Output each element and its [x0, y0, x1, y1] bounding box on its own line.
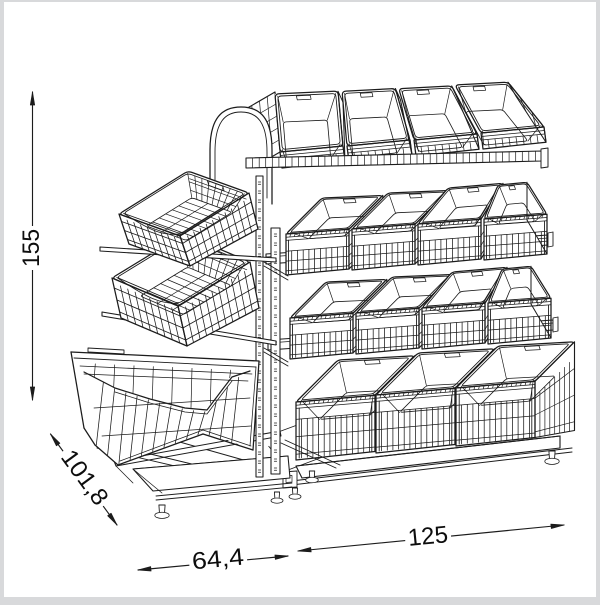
svg-text:155: 155	[18, 229, 45, 267]
svg-text:125: 125	[407, 521, 449, 552]
svg-text:64,4: 64,4	[191, 544, 245, 576]
